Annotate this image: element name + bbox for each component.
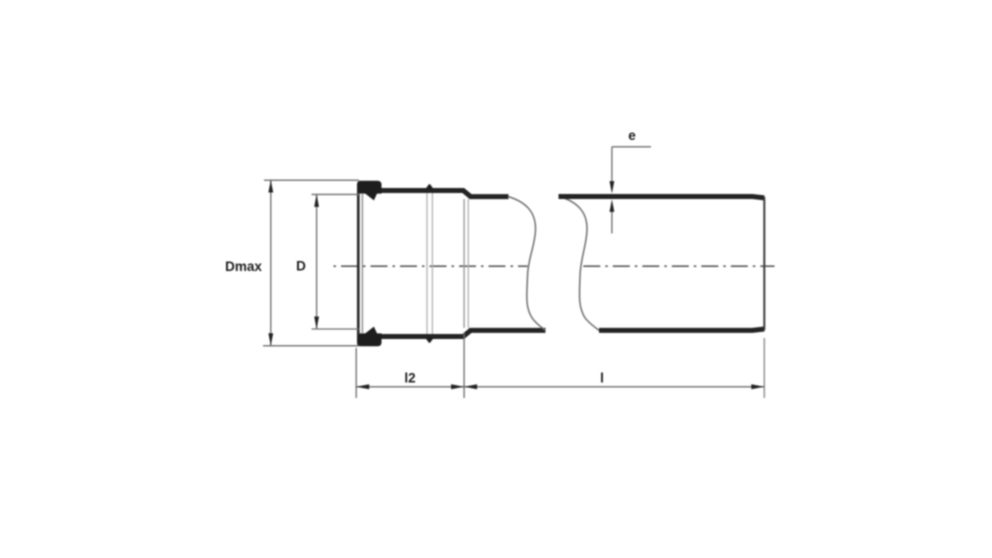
svg-text:Dmax: Dmax bbox=[225, 259, 262, 274]
svg-text:e: e bbox=[628, 128, 636, 143]
svg-text:D: D bbox=[296, 259, 306, 274]
svg-text:l2: l2 bbox=[404, 371, 415, 386]
svg-text:l: l bbox=[600, 371, 604, 386]
